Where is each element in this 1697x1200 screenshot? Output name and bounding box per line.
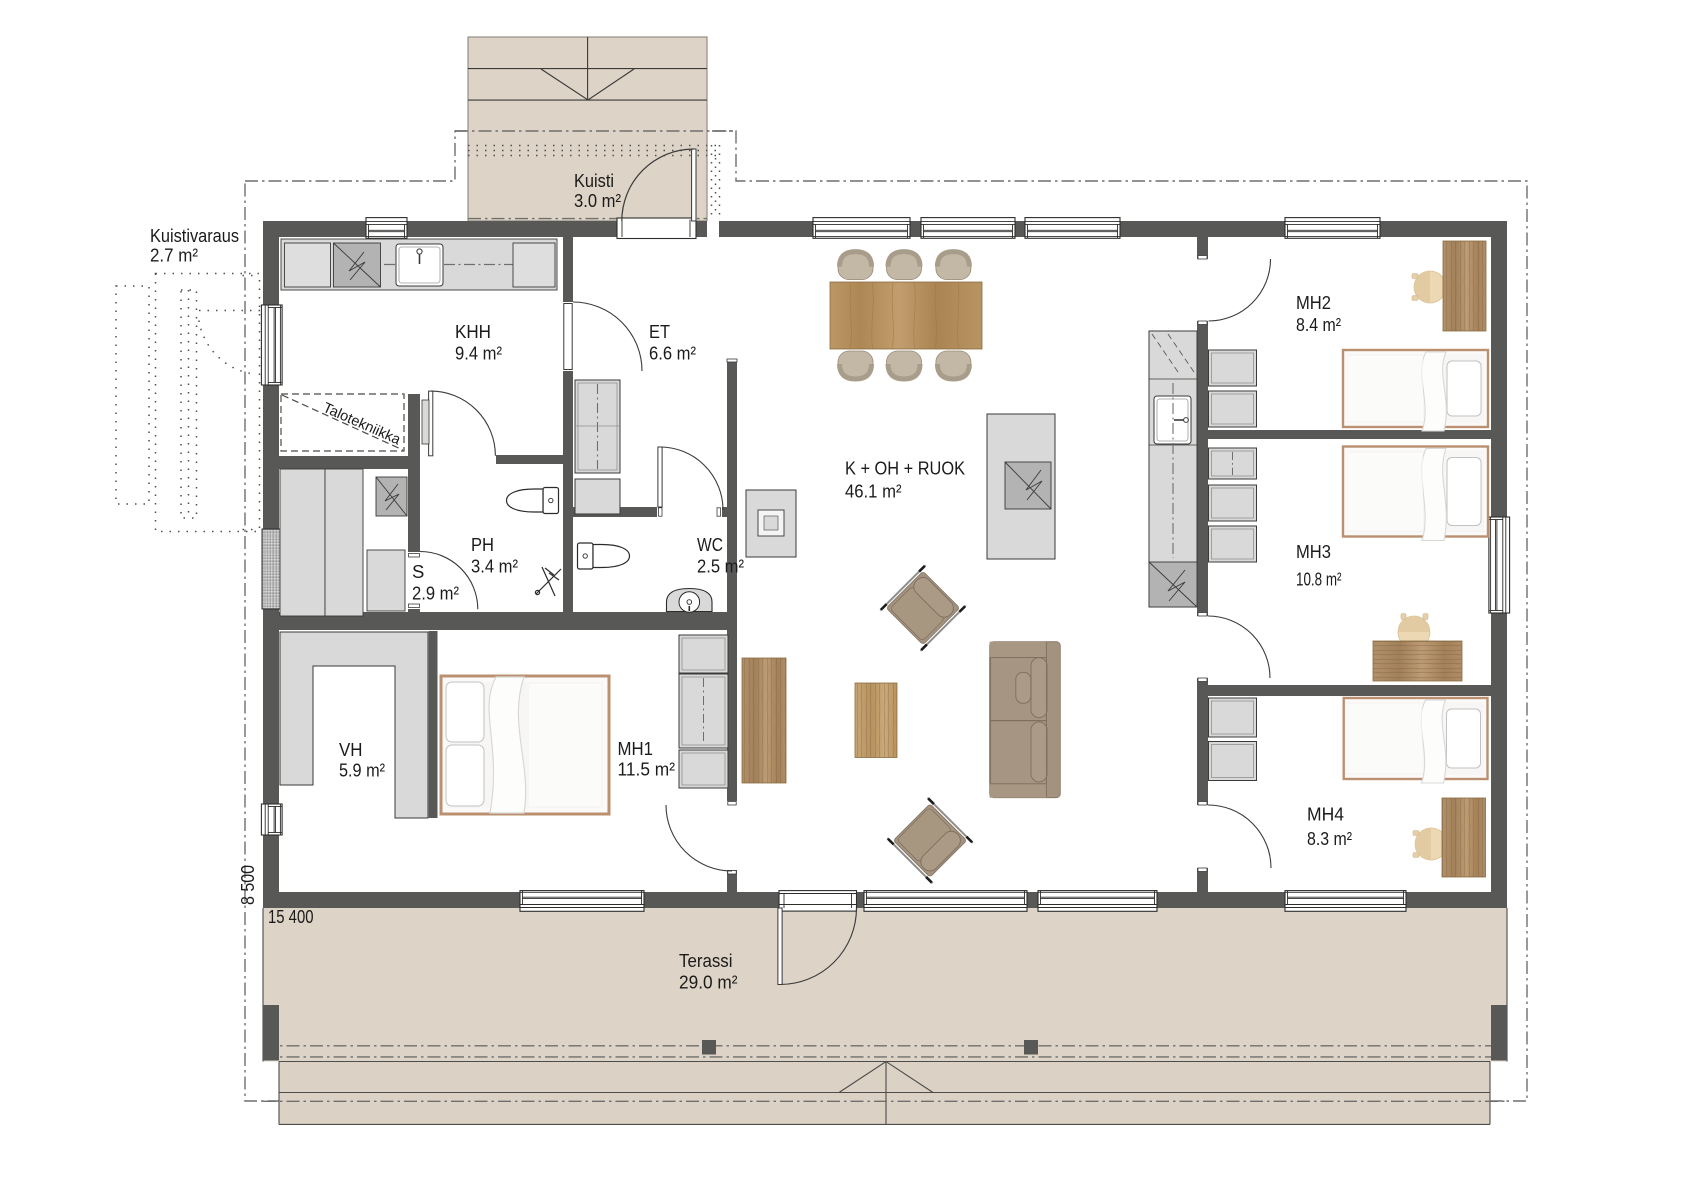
svg-text:3.0 m²: 3.0 m² <box>574 190 621 211</box>
svg-text:MH1: MH1 <box>618 738 654 759</box>
svg-text:S: S <box>412 561 424 582</box>
svg-text:11.5 m²: 11.5 m² <box>618 759 676 780</box>
svg-text:MH2: MH2 <box>1296 292 1331 313</box>
svg-text:6.6 m²: 6.6 m² <box>649 343 696 364</box>
svg-text:15 400: 15 400 <box>268 906 314 927</box>
svg-text:PH: PH <box>471 534 494 555</box>
svg-text:9.4 m²: 9.4 m² <box>455 343 502 364</box>
svg-text:8.4 m²: 8.4 m² <box>1296 314 1341 335</box>
svg-text:29.0 m²: 29.0 m² <box>679 972 738 993</box>
svg-text:Kuistivaraus: Kuistivaraus <box>150 225 239 246</box>
svg-text:10.8 m²: 10.8 m² <box>1296 569 1342 590</box>
svg-text:VH: VH <box>339 739 363 760</box>
svg-text:K + OH + RUOK: K + OH + RUOK <box>845 458 966 479</box>
svg-text:ET: ET <box>649 321 670 342</box>
svg-text:MH4: MH4 <box>1307 804 1344 825</box>
svg-text:46.1 m²: 46.1 m² <box>845 481 902 502</box>
svg-text:3.4 m²: 3.4 m² <box>471 556 518 577</box>
svg-text:8 500: 8 500 <box>237 865 258 905</box>
svg-text:2.7 m²: 2.7 m² <box>150 245 198 266</box>
svg-text:2.9 m²: 2.9 m² <box>412 583 459 604</box>
svg-text:Kuisti: Kuisti <box>574 170 614 191</box>
svg-text:KHH: KHH <box>455 321 491 342</box>
svg-text:WC: WC <box>697 534 723 555</box>
svg-text:MH3: MH3 <box>1296 541 1331 562</box>
svg-text:8.3 m²: 8.3 m² <box>1307 828 1352 849</box>
svg-text:2.5 m²: 2.5 m² <box>697 556 744 577</box>
svg-text:Terassi: Terassi <box>679 950 733 971</box>
svg-text:5.9 m²: 5.9 m² <box>339 760 385 781</box>
